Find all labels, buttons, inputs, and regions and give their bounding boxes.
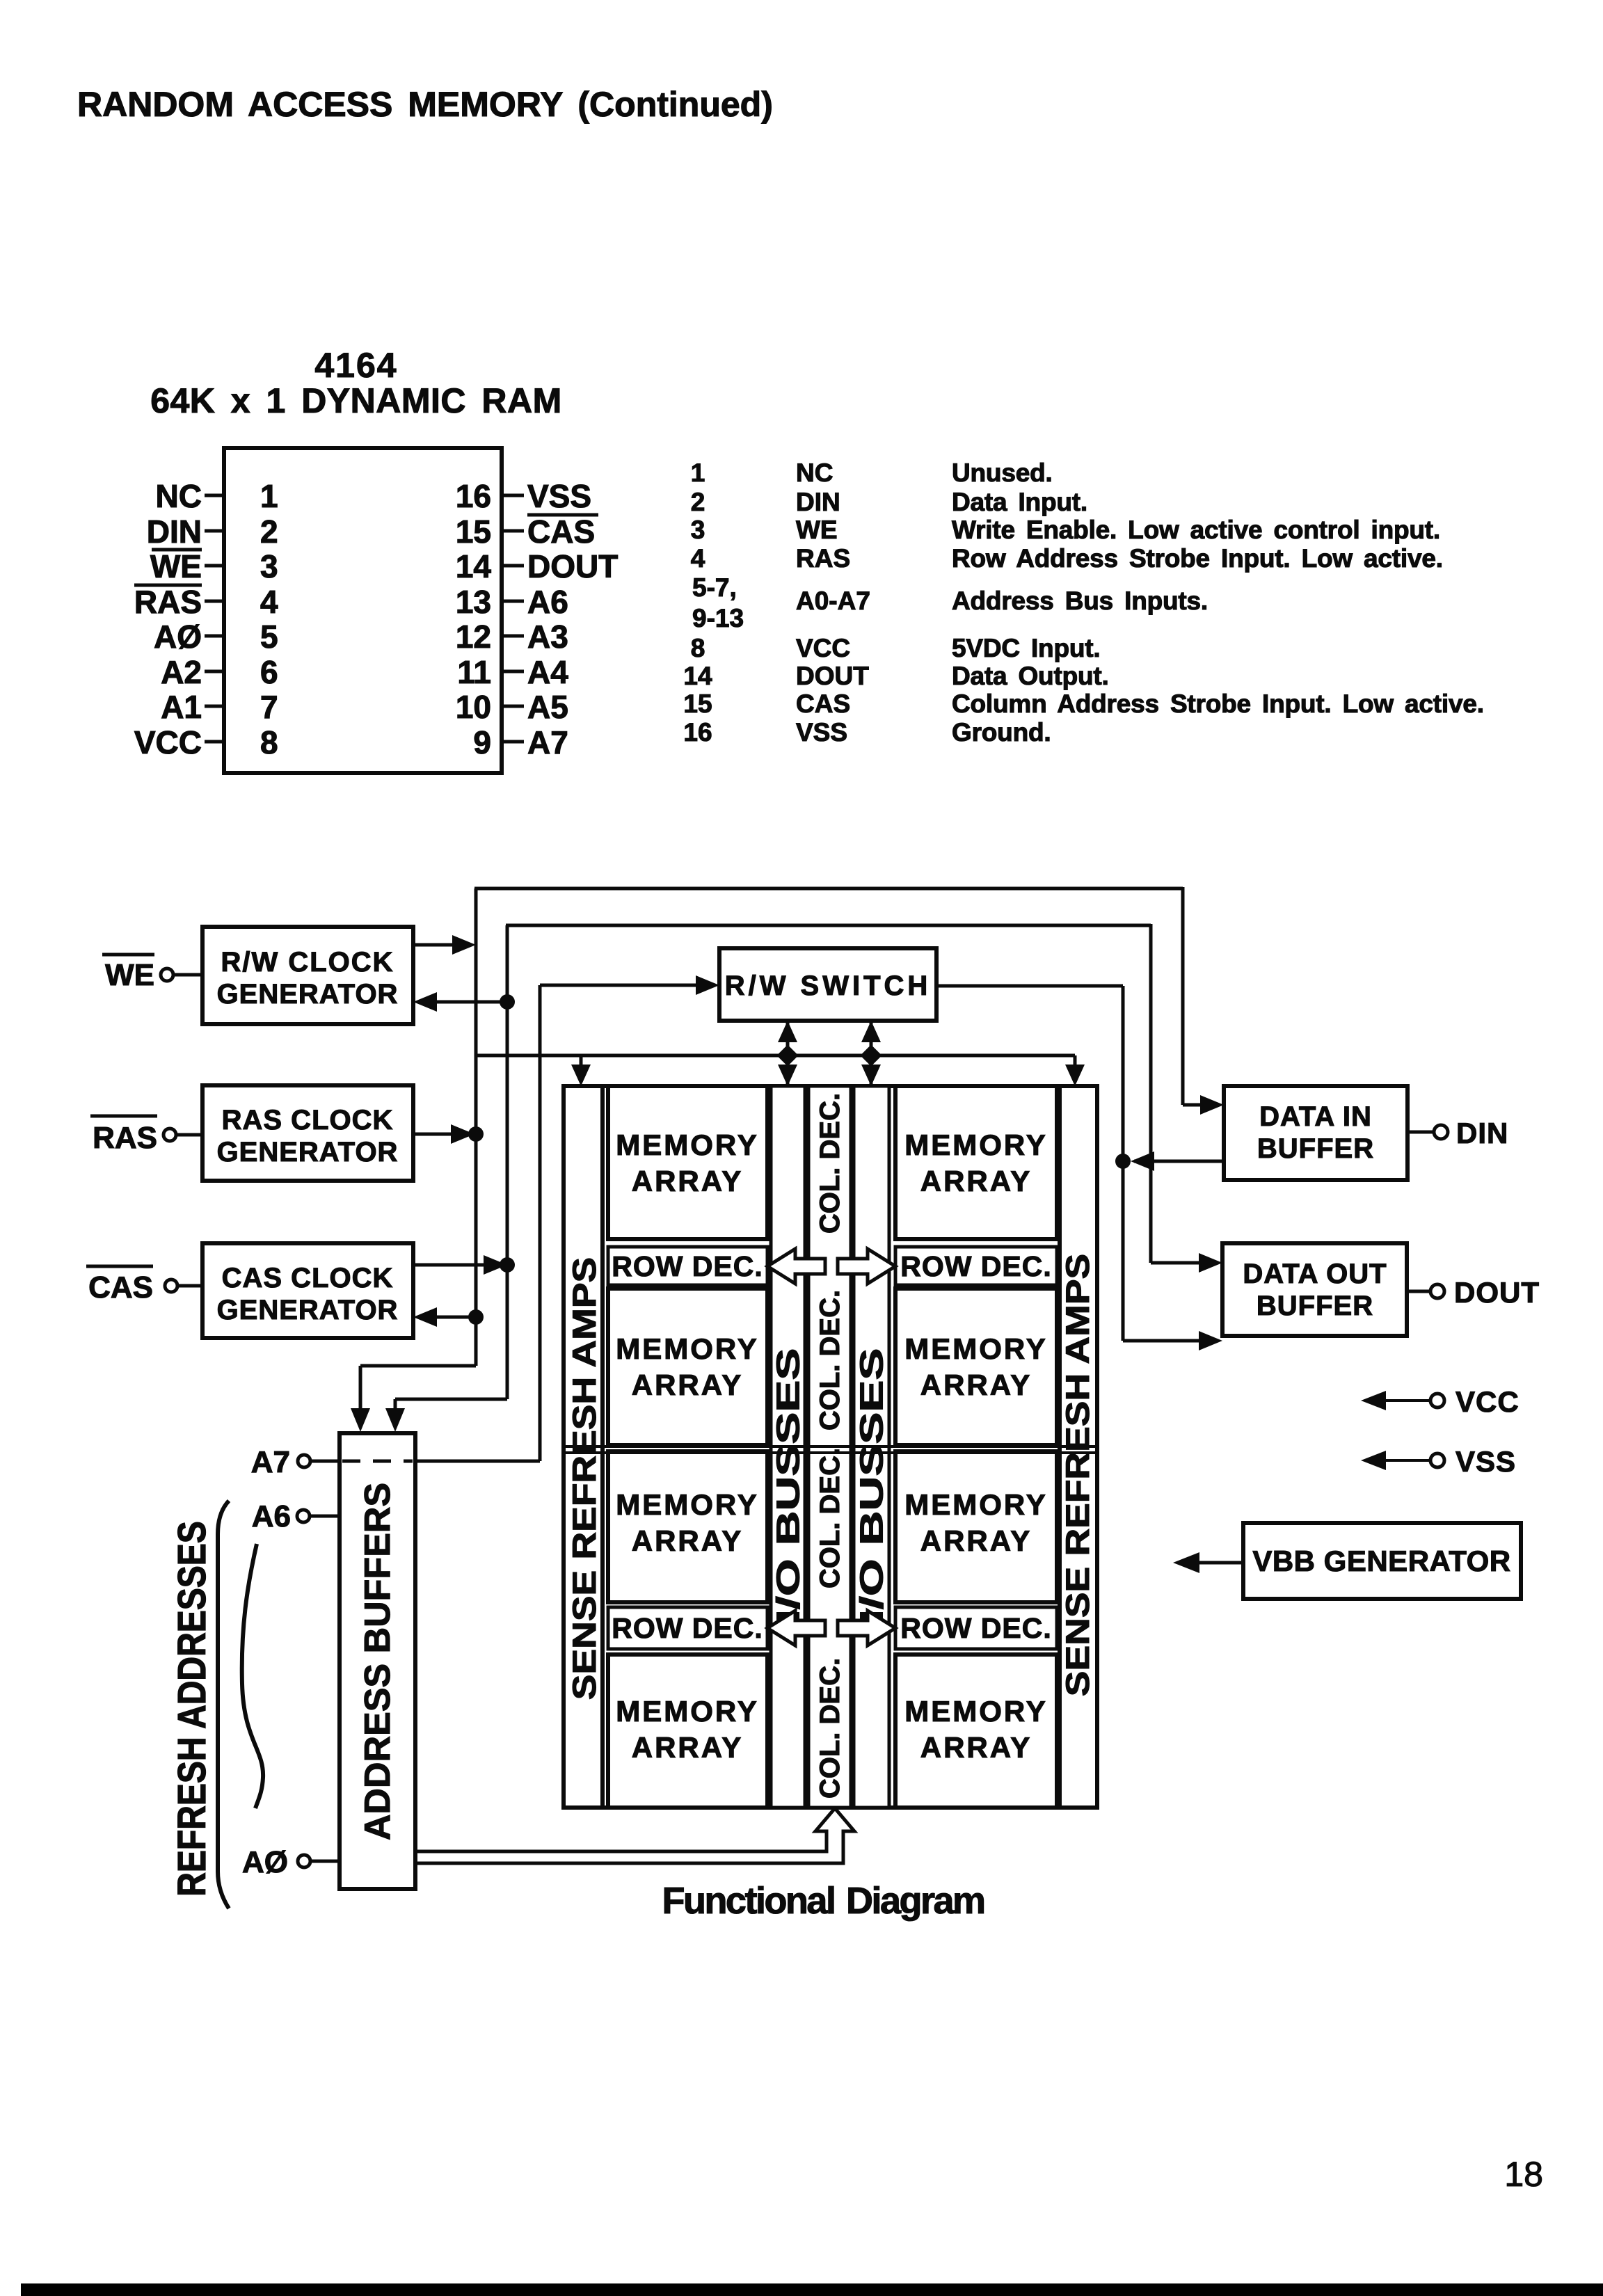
svg-text:CAS CLOCK: CAS CLOCK: [222, 1263, 394, 1293]
svg-text:16: 16: [683, 718, 712, 747]
svg-text:A5: A5: [527, 689, 568, 725]
svg-text:1: 1: [260, 478, 278, 514]
svg-text:Unused.: Unused.: [952, 459, 1053, 487]
svg-text:ROW DEC.: ROW DEC.: [900, 1612, 1052, 1644]
svg-text:DOUT: DOUT: [1454, 1276, 1540, 1309]
svg-text:DIN: DIN: [147, 513, 202, 550]
svg-text:ROW DEC.: ROW DEC.: [612, 1612, 763, 1644]
svg-text:BUFFER: BUFFER: [1257, 1133, 1374, 1164]
svg-text:8: 8: [691, 634, 705, 662]
svg-text:4164: 4164: [314, 346, 397, 385]
svg-text:MEMORY: MEMORY: [904, 1695, 1047, 1728]
svg-text:15: 15: [456, 513, 491, 550]
svg-text:VSS: VSS: [527, 478, 591, 514]
svg-text:6: 6: [260, 654, 278, 690]
svg-text:ARRAY: ARRAY: [920, 1165, 1032, 1197]
svg-text:8: 8: [260, 724, 278, 760]
svg-text:14: 14: [456, 548, 492, 584]
svg-text:VBB GENERATOR: VBB GENERATOR: [1252, 1545, 1510, 1577]
svg-text:18: 18: [1504, 2155, 1543, 2194]
svg-text:COL. DEC.: COL. DEC.: [815, 1658, 845, 1799]
svg-text:SENSE REFRESH AMPS: SENSE REFRESH AMPS: [1060, 1254, 1096, 1696]
svg-text:64K x 1 DYNAMIC RAM: 64K x 1 DYNAMIC RAM: [150, 381, 562, 420]
svg-text:AØ: AØ: [242, 1845, 288, 1879]
svg-text:VSS: VSS: [796, 718, 847, 747]
svg-text:DOUT: DOUT: [796, 662, 869, 690]
svg-text:10: 10: [456, 689, 491, 725]
svg-text:Write Enable. Low active contr: Write Enable. Low active control input.: [952, 516, 1440, 544]
svg-text:RAS: RAS: [796, 544, 850, 573]
svg-text:5VDC Input.: 5VDC Input.: [952, 634, 1100, 662]
svg-text:MEMORY: MEMORY: [616, 1332, 758, 1365]
svg-text:ARRAY: ARRAY: [632, 1524, 743, 1557]
svg-text:WE: WE: [150, 548, 202, 584]
svg-text:RAS: RAS: [134, 584, 202, 620]
svg-text:A0-A7: A0-A7: [796, 587, 870, 615]
svg-text:Row Address Strobe Input. Low: Row Address Strobe Input. Low active.: [952, 544, 1443, 573]
svg-text:RAS CLOCK: RAS CLOCK: [222, 1105, 394, 1135]
svg-text:A6: A6: [252, 1499, 291, 1533]
svg-text:R/W CLOCK: R/W CLOCK: [221, 947, 394, 978]
svg-text:MEMORY: MEMORY: [616, 1695, 758, 1728]
svg-text:15: 15: [683, 689, 712, 718]
svg-text:ADDRESS BUFFERS: ADDRESS BUFFERS: [358, 1483, 398, 1840]
svg-text:CAS: CAS: [88, 1270, 153, 1305]
svg-text:A7: A7: [527, 724, 568, 760]
svg-text:RAS: RAS: [93, 1121, 157, 1155]
svg-text:MEMORY: MEMORY: [616, 1129, 758, 1161]
svg-text:MEMORY: MEMORY: [904, 1332, 1047, 1365]
svg-text:DOUT: DOUT: [527, 548, 618, 584]
svg-text:A7: A7: [251, 1445, 290, 1479]
svg-text:WE: WE: [105, 958, 154, 992]
svg-text:7: 7: [260, 689, 278, 725]
svg-text:DIN: DIN: [796, 488, 840, 516]
svg-text:11: 11: [457, 654, 491, 690]
svg-text:COL. DEC.: COL. DEC.: [815, 1093, 845, 1234]
svg-text:Column Address Strobe Input. L: Column Address Strobe Input. Low active.: [952, 689, 1484, 718]
svg-text:ARRAY: ARRAY: [920, 1731, 1032, 1764]
svg-text:A1: A1: [161, 689, 202, 725]
svg-text:ARRAY: ARRAY: [632, 1731, 743, 1764]
svg-text:DIN: DIN: [1456, 1117, 1508, 1149]
svg-text:VCC: VCC: [796, 634, 850, 662]
svg-text:RANDOM ACCESS MEMORY (Continue: RANDOM ACCESS MEMORY (Continued): [77, 85, 773, 124]
svg-text:GENERATOR: GENERATOR: [217, 979, 399, 1010]
svg-text:A4: A4: [527, 654, 568, 690]
svg-text:14: 14: [683, 662, 712, 690]
svg-text:WE: WE: [796, 516, 838, 544]
svg-text:4: 4: [260, 584, 278, 620]
svg-text:VCC: VCC: [1456, 1385, 1520, 1418]
svg-text:CAS: CAS: [796, 689, 850, 718]
svg-text:MEMORY: MEMORY: [904, 1488, 1047, 1521]
svg-text:ROW DEC.: ROW DEC.: [900, 1250, 1052, 1282]
svg-text:MEMORY: MEMORY: [616, 1488, 758, 1521]
svg-text:ARRAY: ARRAY: [632, 1165, 743, 1197]
svg-text:VSS: VSS: [1456, 1445, 1516, 1478]
svg-text:CAS: CAS: [527, 513, 595, 550]
svg-text:13: 13: [456, 584, 491, 620]
svg-text:5: 5: [260, 619, 278, 655]
svg-text:GENERATOR: GENERATOR: [217, 1137, 399, 1167]
svg-text:AØ: AØ: [154, 619, 202, 655]
svg-text:I/O BUSSES: I/O BUSSES: [771, 1348, 806, 1623]
svg-text:COL. DEC.: COL. DEC.: [815, 1448, 845, 1588]
svg-text:5-7,: 5-7,: [692, 573, 737, 602]
svg-text:I/O BUSSES: I/O BUSSES: [854, 1348, 890, 1623]
svg-text:12: 12: [456, 619, 491, 655]
svg-text:Address Bus Inputs.: Address Bus Inputs.: [952, 587, 1208, 615]
svg-text:Functional Diagram: Functional Diagram: [662, 1880, 984, 1922]
svg-text:NC: NC: [156, 478, 202, 514]
svg-text:3: 3: [260, 548, 278, 584]
svg-text:A6: A6: [527, 584, 568, 620]
svg-text:DATA IN: DATA IN: [1259, 1101, 1372, 1132]
svg-text:Data Input.: Data Input.: [952, 488, 1087, 516]
svg-text:9: 9: [473, 724, 491, 760]
svg-text:ARRAY: ARRAY: [920, 1369, 1032, 1401]
svg-text:COL. DEC.: COL. DEC.: [815, 1290, 845, 1430]
svg-text:1: 1: [691, 459, 705, 487]
svg-text:R/W SWITCH: R/W SWITCH: [725, 971, 932, 1001]
svg-text:ROW DEC.: ROW DEC.: [612, 1250, 763, 1282]
svg-text:4: 4: [691, 544, 705, 573]
svg-text:GENERATOR: GENERATOR: [217, 1295, 399, 1325]
svg-text:ARRAY: ARRAY: [632, 1369, 743, 1401]
svg-text:A2: A2: [161, 654, 202, 690]
svg-text:16: 16: [456, 478, 491, 514]
svg-text:3: 3: [691, 516, 705, 544]
svg-text:DATA OUT: DATA OUT: [1243, 1259, 1387, 1289]
svg-text:NC: NC: [796, 459, 833, 487]
svg-text:REFRESH ADDRESSES: REFRESH ADDRESSES: [170, 1521, 214, 1897]
svg-text:VCC: VCC: [134, 724, 202, 760]
svg-text:A3: A3: [527, 619, 568, 655]
svg-text:9-13: 9-13: [692, 604, 744, 632]
svg-text:2: 2: [260, 513, 278, 550]
svg-text:Ground.: Ground.: [952, 718, 1051, 747]
svg-text:ARRAY: ARRAY: [920, 1524, 1032, 1557]
svg-text:BUFFER: BUFFER: [1257, 1291, 1373, 1321]
svg-text:SENSE REFRESH AMPS: SENSE REFRESH AMPS: [566, 1257, 603, 1700]
svg-text:MEMORY: MEMORY: [904, 1129, 1047, 1161]
svg-text:Data Output.: Data Output.: [952, 662, 1109, 690]
svg-text:2: 2: [691, 488, 705, 516]
